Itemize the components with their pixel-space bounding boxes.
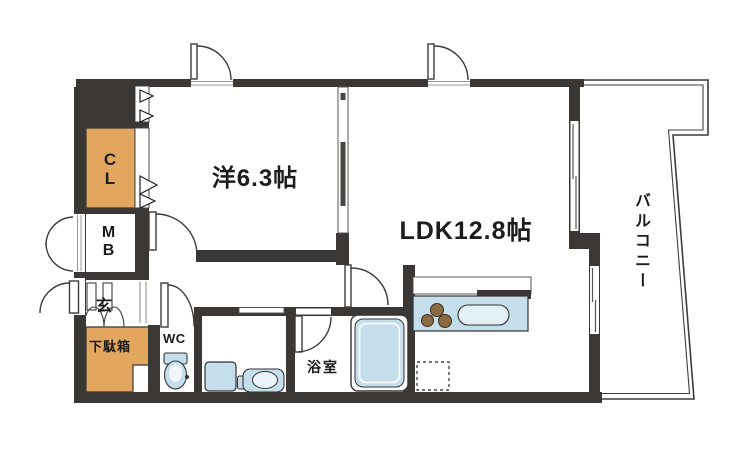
washing-machine bbox=[205, 362, 236, 391]
entrance-door-arc bbox=[40, 283, 70, 313]
entrance-label: 玄 bbox=[96, 292, 112, 316]
sliding-partition bbox=[338, 87, 348, 233]
bath-door-arc bbox=[298, 317, 331, 352]
toilet bbox=[164, 353, 189, 389]
top-window-leaf-ldk bbox=[428, 44, 434, 79]
bathroom-label: 浴室 bbox=[307, 357, 339, 377]
bath-door-leaf bbox=[295, 316, 302, 352]
ldk-door-arc bbox=[351, 268, 388, 305]
kitchen-counter bbox=[413, 277, 531, 331]
floor-plan: 洋6.3帖 LDK12.8帖 バルコニー CL MB 玄 下駄箱 WC 浴室 bbox=[0, 0, 740, 450]
western-room-label: 洋6.3帖 bbox=[212, 158, 298, 193]
balcony-window-upper bbox=[571, 121, 579, 231]
shoe-door-leaf bbox=[87, 283, 96, 310]
meter-box-label: MB bbox=[100, 224, 117, 260]
refrigerator-space bbox=[417, 362, 449, 390]
ldk-door-leaf bbox=[345, 265, 351, 307]
vanity-sink bbox=[238, 369, 285, 392]
balcony-window-lower bbox=[590, 266, 599, 334]
washroom-sliding-door bbox=[239, 308, 284, 314]
entrance-step bbox=[135, 280, 150, 325]
meter-box-doors bbox=[46, 217, 73, 245]
ldk-label: LDK12.8帖 bbox=[399, 211, 532, 247]
entrance-door-leaf bbox=[70, 281, 79, 313]
western-room-door-leaf bbox=[149, 212, 156, 250]
toilet-label: WC bbox=[163, 331, 186, 346]
balcony-label: バルコニー bbox=[628, 192, 652, 292]
wc-door-leaf bbox=[161, 283, 168, 327]
closet-label: CL bbox=[102, 150, 118, 188]
shoe-cabinet-label: 下駄箱 bbox=[89, 336, 131, 355]
kitchen-sink bbox=[458, 305, 509, 325]
wc-door-arc bbox=[168, 285, 194, 326]
bathtub bbox=[351, 315, 408, 391]
western-room-door-arc bbox=[156, 214, 197, 255]
top-window-leaf-west bbox=[191, 44, 197, 79]
